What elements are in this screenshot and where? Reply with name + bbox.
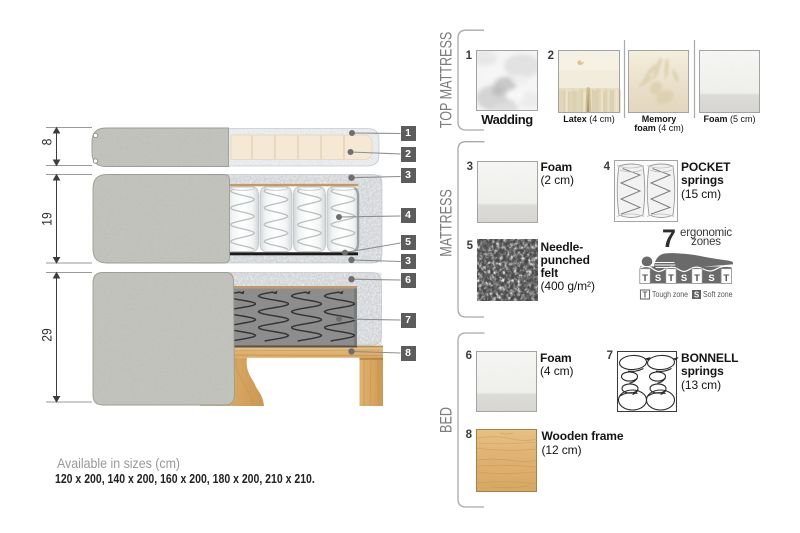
svg-text:S: S xyxy=(694,290,700,299)
svg-text:T: T xyxy=(643,290,648,299)
svg-text:T: T xyxy=(642,273,648,284)
svg-text:S: S xyxy=(681,273,687,284)
svg-text:S: S xyxy=(655,273,661,284)
svg-text:T: T xyxy=(723,273,729,284)
svg-text:S: S xyxy=(708,273,714,284)
svg-text:T: T xyxy=(694,273,700,284)
svg-text:T: T xyxy=(668,273,674,284)
